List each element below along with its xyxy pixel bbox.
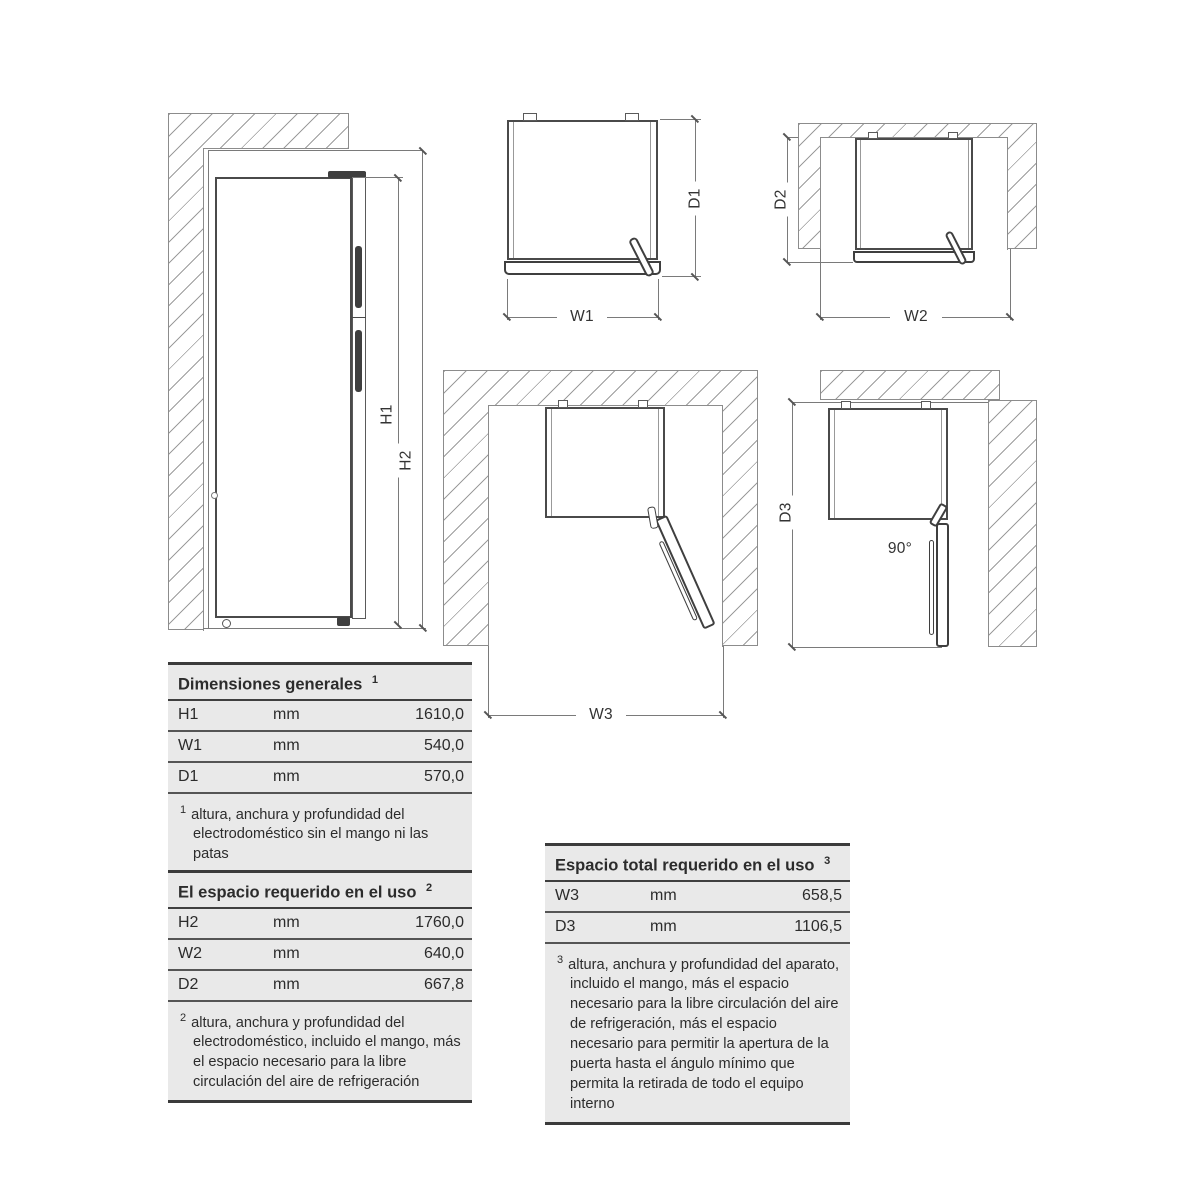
cabinet-inner-wall [941,410,942,518]
dim-label-w1: W1 [557,308,607,325]
dim-label-w2: W2 [890,308,942,325]
cabinet-inner-wall [658,409,659,516]
dim-label-h2: H2 [398,444,415,478]
hinge-tab [921,401,931,409]
footnote-marker: 1 [180,804,186,816]
hinge-tab [625,113,639,121]
door-handle-lower [355,330,362,392]
door-angle-label: 90° [880,540,920,557]
dim-code: W2 [168,945,273,963]
w1-extension-line [658,279,659,320]
door-handle [929,540,934,635]
dim-value: 1610,0 [358,706,472,724]
dim-unit: mm [273,768,358,786]
footnote-text: altura, anchura y profundidad del aparat… [568,956,839,1112]
w3-extension-line [488,646,489,718]
footnote-text: altura, anchura y profundidad del electr… [191,1014,461,1090]
fridge-top-body [828,408,948,520]
fridge-top-body [545,407,665,518]
w1-extension-line [507,279,508,320]
dim-unit: mm [273,737,358,755]
dim-value: 640,0 [358,945,472,963]
wall-hatch-right [988,400,1037,647]
dim-value: 1760,0 [358,914,472,932]
dim-code: D3 [545,918,650,936]
cabinet-inner-wall [968,140,969,248]
hinge-pin [211,492,218,499]
dim-unit: mm [650,887,735,905]
dimension-sheet: H1 H2 W1 D1 [0,0,1200,1200]
fridge-side-door [352,172,366,619]
dim-code: W1 [168,737,273,755]
w2-extension-line [1010,249,1011,320]
table-title: El espacio requerido en el uso 2 [168,873,472,909]
hinge-tab [523,113,537,121]
dim-unit: mm [273,976,358,994]
footnote-marker: 2 [180,1012,186,1024]
table-title-text: Espacio total requerido en el uso [555,857,814,875]
dim-label-w3: W3 [576,706,626,723]
table-row: D2 mm 667,8 [168,971,472,1002]
table-total-space: Espacio total requerido en el uso 3 W3 m… [545,843,850,1125]
caster-front [222,619,231,628]
dim-value: 570,0 [358,768,472,786]
wall-hatch-top [820,370,1000,400]
w2-extension-line [820,249,821,320]
cabinet-inner-wall [650,122,651,258]
cabinet-inner-wall [551,409,552,516]
table-row: W2 mm 640,0 [168,940,472,971]
table-row: W3 mm 658,5 [545,882,850,913]
hinge-tab [638,400,648,408]
cabinet-inner-wall [834,410,835,518]
footnote-text: altura, anchura y profundidad del electr… [191,806,428,862]
dim-value: 540,0 [358,737,472,755]
table-footnote: 2altura, anchura y profundidad del elect… [168,1002,472,1101]
hinge-tab [558,400,568,408]
door-handle-upper [355,246,362,308]
dim-code: H1 [168,706,273,724]
table-footnote: 1altura, anchura y profundidad del elect… [168,794,472,873]
dim-code: D1 [168,768,273,786]
floor-line [203,628,426,629]
table-row: D1 mm 570,0 [168,763,472,794]
dim-value: 658,5 [735,887,850,905]
door-split-line [352,317,366,318]
table-general-dimensions: Dimensiones generales 1 H1 mm 1610,0 W1 … [168,662,472,875]
door-closed-bar [504,261,661,275]
dim-code: W3 [545,887,650,905]
dim-unit: mm [650,918,735,936]
table-title: Espacio total requerido en el uso 3 [545,846,850,882]
table-row: D3 mm 1106,5 [545,913,850,944]
table-row: H2 mm 1760,0 [168,909,472,940]
fridge-side-body [215,177,352,618]
cabinet-inner-wall [860,140,861,248]
hinge-tab [841,401,851,409]
table-row: H1 mm 1610,0 [168,701,472,732]
dim-value: 667,8 [358,976,472,994]
table-required-space: El espacio requerido en el uso 2 H2 mm 1… [168,870,472,1103]
table-row: W1 mm 540,0 [168,732,472,763]
dim-label-h1: H1 [379,398,396,432]
dim-unit: mm [273,945,358,963]
hinge-tab [948,132,958,139]
dim-line-h1 [398,178,399,625]
table-title-text: Dimensiones generales [178,676,362,694]
footnote-marker: 1 [372,674,378,686]
dim-unit: mm [273,706,358,724]
hinge-tab [868,132,878,139]
fridge-top-body [855,138,973,250]
footnote-marker: 3 [557,954,563,966]
dim-label-d2: D2 [773,183,790,217]
table-title-text: El espacio requerido en el uso [178,884,416,902]
dim-code: H2 [168,914,273,932]
foot-rear [337,617,350,626]
dim-unit: mm [273,914,358,932]
dim-label-d3: D3 [778,496,795,530]
dim-code: D2 [168,976,273,994]
footnote-marker: 3 [824,855,830,867]
dim-value: 1106,5 [735,918,850,936]
door-open-90-bar [936,523,949,647]
ceiling-face-line [792,402,988,403]
d3-extension-line [792,647,942,648]
table-footnote: 3altura, anchura y profundidad del apara… [545,944,850,1123]
cabinet-inner-wall [513,122,514,258]
w3-extension-line [723,646,724,718]
dim-label-d1: D1 [687,182,704,216]
table-title: Dimensiones generales 1 [168,665,472,701]
footnote-marker: 2 [426,882,432,894]
